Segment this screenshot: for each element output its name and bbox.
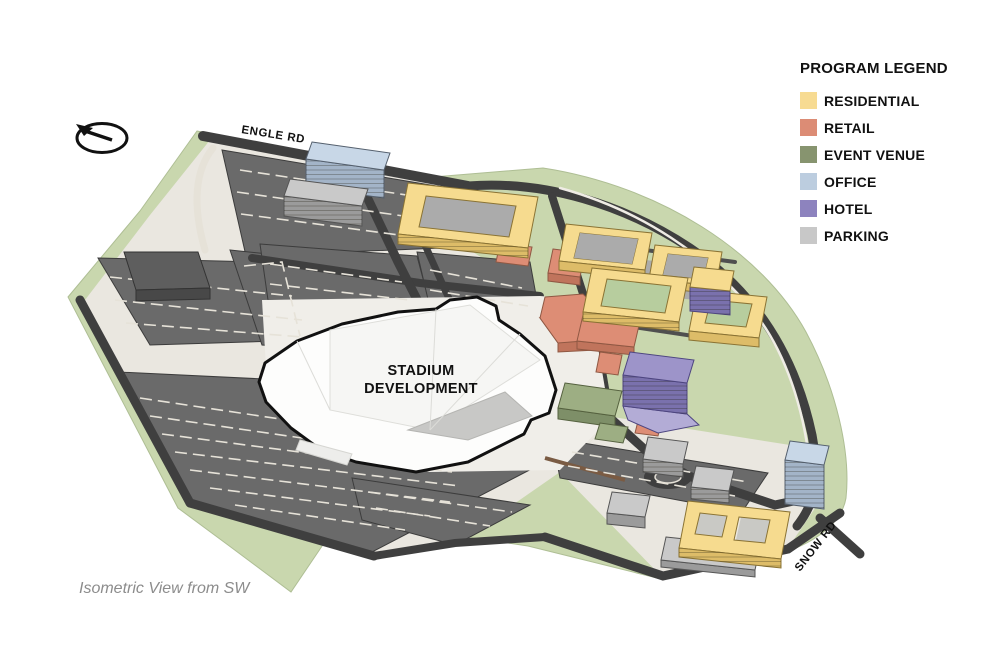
residential-top-center (398, 183, 538, 258)
event-venue-swatch (800, 146, 817, 163)
office-label: OFFICE (824, 174, 877, 190)
retail-label: RETAIL (824, 120, 875, 136)
legend-item-event-venue: EVENT VENUE (800, 141, 990, 168)
residential-swatch (800, 92, 817, 109)
hotel-label: HOTEL (824, 201, 872, 217)
event-venue-label: EVENT VENUE (824, 147, 925, 163)
retail-swatch (800, 119, 817, 136)
parking-label: PARKING (824, 228, 889, 244)
legend-title: PROGRAM LEGEND (800, 60, 990, 77)
hotel-midrise (690, 267, 734, 315)
legend-item-parking: PARKING (800, 222, 990, 249)
hotel-swatch (800, 200, 817, 217)
office-tower-se (785, 441, 829, 509)
legend-item-office: OFFICE (800, 168, 990, 195)
residential-ring-c (583, 268, 688, 331)
parking-structure-s (607, 492, 650, 528)
program-legend: PROGRAM LEGEND RESIDENTIAL RETAIL EVENT … (800, 60, 990, 249)
event-venue-small (595, 423, 628, 443)
stadium-label-line1: STADIUM (387, 363, 454, 379)
retail-strip-3 (596, 352, 622, 375)
residential-label: RESIDENTIAL (824, 93, 920, 109)
residential-se (679, 501, 790, 568)
legend-item-retail: RETAIL (800, 114, 990, 141)
parking-structure-e2 (691, 466, 734, 503)
office-swatch (800, 173, 817, 190)
existing-building (124, 252, 210, 301)
view-caption: Isometric View from SW (79, 580, 249, 598)
parking-swatch (800, 227, 817, 244)
north-arrow-icon (76, 124, 127, 153)
event-venue-main (558, 383, 622, 427)
parking-structure-e1 (643, 437, 688, 477)
legend-item-hotel: HOTEL (800, 195, 990, 222)
legend-item-residential: RESIDENTIAL (800, 87, 990, 114)
site-plan-canvas: STADIUM DEVELOPMENT ENGLE RD SNOW RD PRO… (0, 0, 994, 656)
stadium-label-line2: DEVELOPMENT (364, 381, 478, 397)
